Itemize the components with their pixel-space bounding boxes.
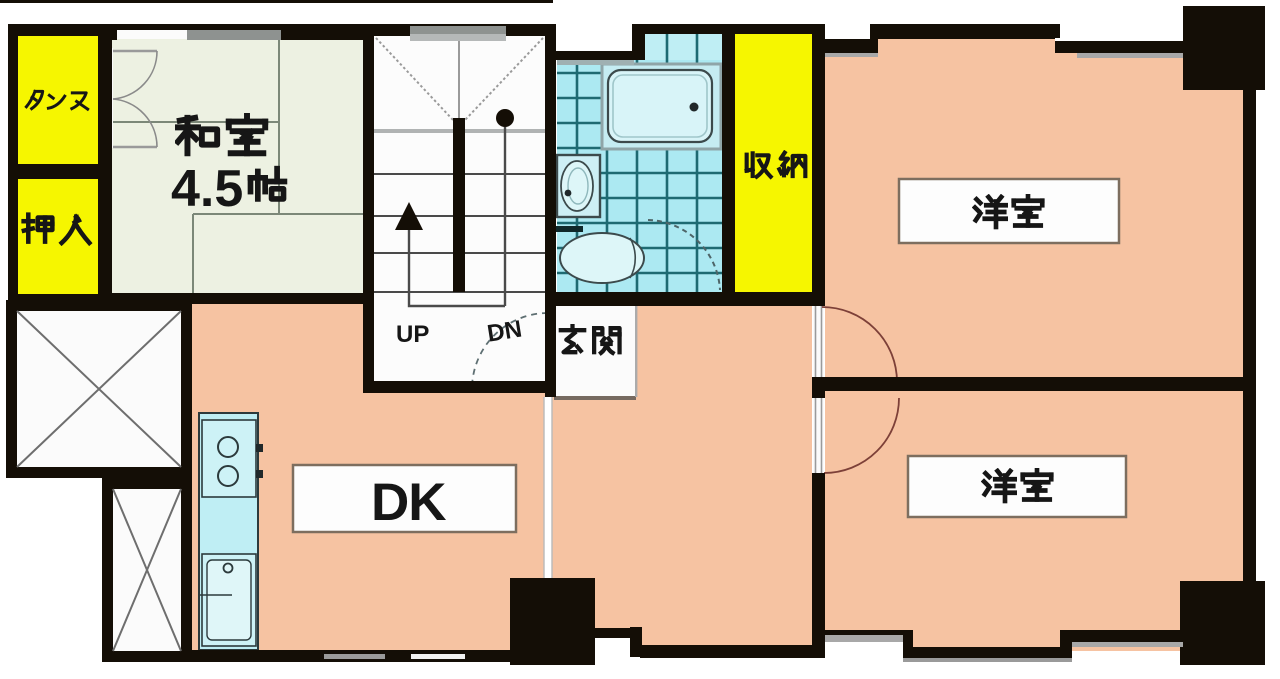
svg-text:DN: DN xyxy=(485,316,523,348)
svg-text:DK: DK xyxy=(371,473,446,532)
svg-text:UP: UP xyxy=(396,321,429,348)
svg-text:4.5: 4.5 xyxy=(171,160,243,218)
